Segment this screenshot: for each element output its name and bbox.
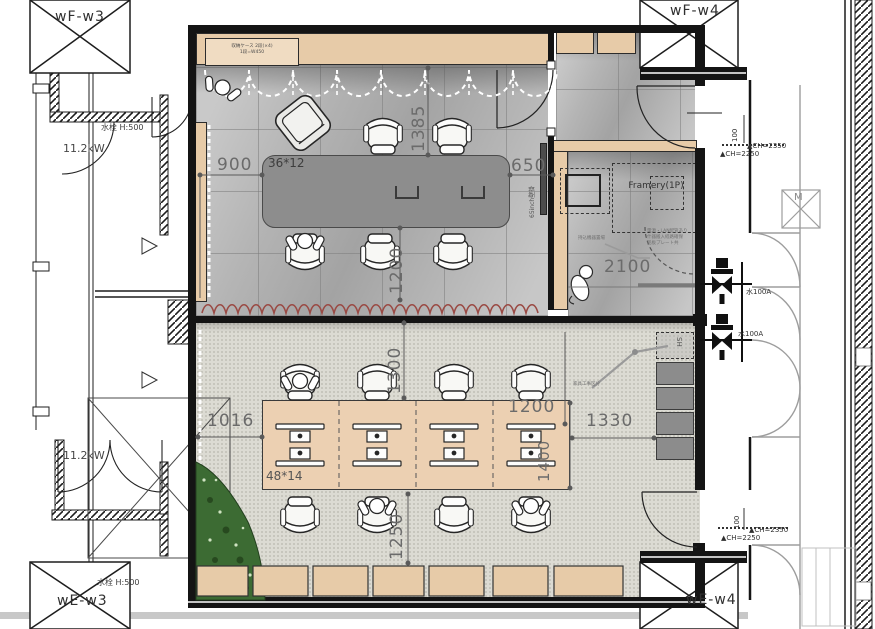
bottom-cabinets: [197, 566, 623, 596]
dim-2100: 2100: [604, 259, 651, 277]
dim-1300: 1300: [387, 347, 405, 394]
work-desk-label: 48*14: [266, 470, 303, 483]
storage-note-line1: 収納ケース 2段(×4): [205, 45, 299, 50]
water-label-1: 水100A: [746, 289, 771, 296]
tv-label: 65inch壁掛: [530, 186, 536, 218]
door-jambs: [547, 61, 555, 136]
desk-dividers: [339, 401, 493, 489]
dim-1330: 1330: [586, 413, 633, 431]
interior-door-arcs: [497, 70, 722, 547]
tap-label-bottom: 水栓 H:500: [97, 579, 140, 587]
dim-650: 650: [511, 158, 546, 176]
dim-1385: 1385: [411, 105, 429, 152]
sh-box-label: SH: [675, 337, 682, 347]
plumbing-valves: [700, 258, 752, 362]
red-squiggle-wall: [202, 305, 538, 313]
framery-note-1: 電源・LAN配管あり: [647, 230, 688, 235]
column-label-top-left: wF-w3: [55, 10, 105, 25]
ch2250-bottom: ▲CH=2250: [721, 535, 760, 542]
framery-note-3: 銘板プレート共: [647, 242, 679, 247]
dim-1250: 1250: [389, 513, 407, 560]
water-label-2: 水100A: [738, 331, 763, 338]
column-label-bottom-right: wE-w4: [686, 593, 737, 608]
framery-figure: [568, 266, 592, 305]
left-door-arcs: [58, 97, 192, 492]
framery-lead-note: 持込機器置場: [578, 237, 605, 242]
dim-100-top: 100: [732, 129, 739, 142]
power-label-top: 11.2kW: [63, 143, 105, 155]
floor-plan: wF-w3 wF-w4 wE-w3 wE-w4 M 11.2kW 水栓 H:50…: [0, 0, 875, 629]
column-label-bottom-left: wE-w3: [57, 594, 108, 609]
dim-1400: 1400: [537, 440, 553, 482]
storage-note-line2: 1段=W450: [205, 51, 299, 56]
framery-note-2: 什器搬入経路確保: [647, 236, 683, 241]
framery-name: Framery(1P): [615, 182, 697, 191]
ch2250-top: ▲CH=2250: [720, 151, 759, 158]
dim-1200-lower: 1200: [508, 399, 555, 417]
right-corridor: [700, 80, 820, 629]
table-cable-boxes: [396, 186, 484, 198]
work-lead-note: 家具工事区分: [573, 383, 600, 388]
column-label-top-right: wF-w4: [670, 4, 720, 19]
dim-1016: 1016: [207, 413, 254, 431]
dim-900: 900: [217, 157, 252, 175]
ch-dim-marks: [718, 115, 790, 530]
dim-100-bottom: 100: [734, 516, 741, 529]
meeting-table-label: 36*12: [268, 157, 305, 170]
m-box-label: M: [794, 193, 803, 204]
column-boxes: [30, 0, 738, 629]
power-label-bottom: 11.2kW: [63, 450, 105, 462]
tap-label-top: 水栓 H:500: [101, 124, 144, 132]
dim-1200-upper: 1200: [389, 247, 407, 294]
far-right-wall: [802, 0, 872, 629]
